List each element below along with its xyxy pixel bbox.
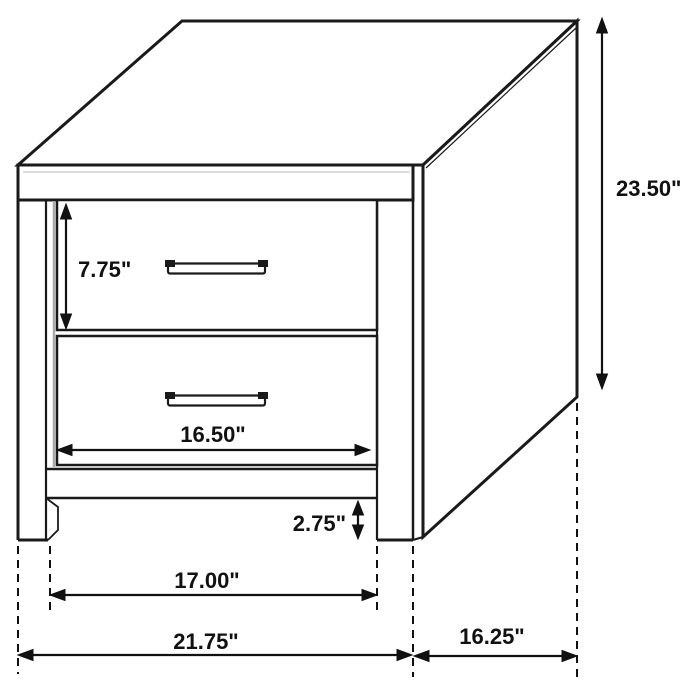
left-leg-side-wedge [46, 498, 58, 540]
dimension-diagram: 7.75" 23.50" 16.50" 2.75" 17.00" 21.75" … [0, 0, 700, 700]
overall-height-label: 23.50" [616, 176, 681, 201]
overall-width-label: 21.75" [173, 629, 238, 654]
drawer-2-handle-icon[interactable] [166, 393, 268, 406]
dimension-overall-depth [414, 651, 577, 662]
leg-clearance-label: 2.75" [293, 511, 346, 536]
dimension-leg-clearance [353, 501, 364, 539]
nightstand-drawing: 7.75" 23.50" 16.50" 2.75" 17.00" 21.75" … [0, 0, 700, 700]
tabletop-front-band [18, 165, 413, 200]
drawer-height-label: 7.75" [78, 257, 131, 282]
drawer-1-handle-icon[interactable] [166, 261, 268, 274]
drawer-width-label: 16.50" [180, 422, 245, 447]
overall-depth-label: 16.25" [459, 624, 524, 649]
dimension-overall-height [597, 18, 608, 389]
leg-span-label: 17.00" [174, 568, 239, 593]
